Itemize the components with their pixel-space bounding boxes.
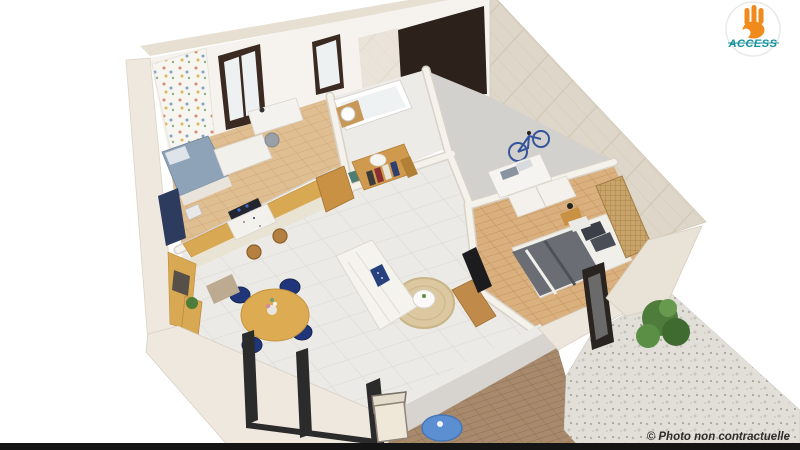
bedside-lamp — [567, 203, 573, 209]
bar-stool — [273, 229, 287, 243]
desk-chair — [265, 133, 279, 147]
logo-brand-text: ACCESS — [728, 38, 778, 50]
bar-stool — [247, 245, 261, 259]
outdoor-side-table — [422, 415, 462, 441]
cup — [437, 421, 443, 427]
floorplan-render: ACCESS © Photo non contractuelle — [0, 0, 800, 450]
copyright-text: © Photo non contractuelle — [647, 431, 791, 443]
plant — [186, 297, 198, 309]
floorplan-scene: ACCESS © Photo non contractuelle — [0, 0, 800, 450]
vessel-sink — [341, 107, 355, 121]
bathroom-window — [312, 34, 344, 95]
coffee-table — [413, 290, 435, 308]
bottom-strip — [0, 443, 800, 450]
brand-logo: ACCESS — [726, 2, 780, 56]
ok-hand-icon — [742, 5, 765, 39]
laundry-basket — [370, 154, 386, 166]
desk-lamp — [260, 108, 265, 113]
outdoor-chair — [372, 392, 408, 442]
